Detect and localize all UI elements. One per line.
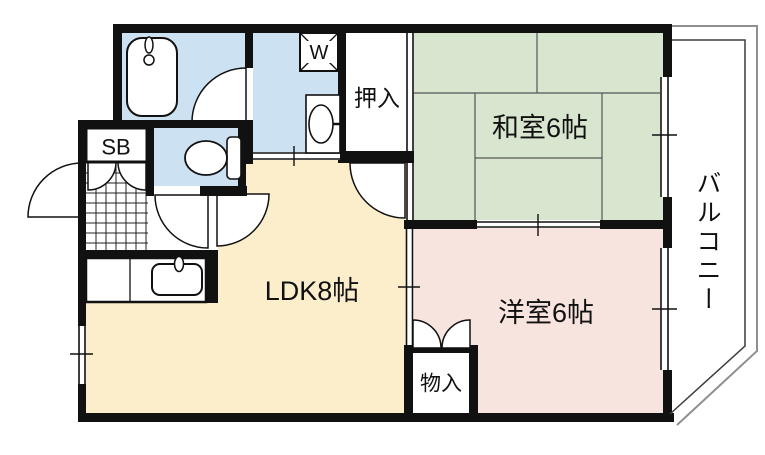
wall-oshiire-bottom: [338, 151, 414, 163]
wash-basin: [306, 95, 345, 153]
shoebox: SB: [86, 128, 147, 162]
wall-bottom: [78, 413, 674, 422]
wall-bath-left: [113, 24, 122, 128]
kitchen-counter: [86, 257, 206, 303]
balcony-label: バルコニー: [693, 170, 721, 315]
ldk-label: LDK8帖: [265, 276, 360, 306]
wall-counter-stub: [206, 250, 218, 303]
toilet-tank: [227, 137, 241, 179]
wall-washitsu-yoshitsu-left: [404, 220, 477, 229]
wall-right-top: [663, 24, 672, 77]
washitsu-doorframe: [406, 163, 414, 220]
wall-bath-wash-divider-top: [245, 24, 253, 68]
floorplan-drawing: SB W 和室6帖 LDK8帖 洋室6帖 押入: [0, 0, 765, 455]
toilet-bowl: [185, 141, 227, 175]
washitsu-label: 和室6帖: [492, 113, 588, 143]
monoire-label: 物入: [420, 373, 462, 396]
wall-toilet-bottom: [200, 186, 247, 196]
bathroom-fixtures: [127, 37, 177, 116]
wall-monoire-left: [404, 345, 413, 413]
bathtub-drain: [144, 55, 154, 65]
bathtub-faucet: [145, 37, 153, 53]
wall-bath-wash-divider-bottom: [245, 122, 253, 164]
washer-pan: W: [300, 33, 338, 71]
oshiire-label: 押入: [354, 85, 400, 111]
shoebox-label: SB: [101, 135, 130, 160]
wall-top: [113, 24, 672, 33]
wall-washitsu-yoshitsu-right: [600, 220, 663, 229]
yoshitsu-label: 洋室6帖: [498, 298, 594, 328]
wall-monoire-right: [469, 345, 478, 413]
kitchen-faucet: [175, 257, 184, 272]
oshiire-fusuma: [406, 33, 414, 151]
wall-right-mid: [663, 197, 672, 248]
washer-label: W: [310, 42, 329, 64]
floorplan-stage: SB W 和室6帖 LDK8帖 洋室6帖 押入: [0, 0, 765, 455]
front-door-swing: [28, 163, 82, 217]
